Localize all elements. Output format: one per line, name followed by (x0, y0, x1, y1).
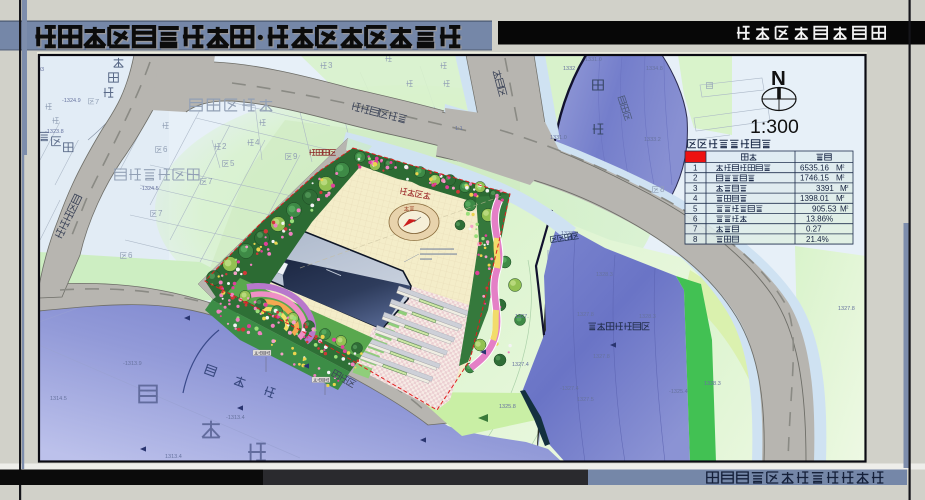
svg-text:1327.8: 1327.8 (593, 354, 610, 360)
svg-text:4: 4 (255, 138, 260, 147)
svg-text:6: 6 (693, 215, 698, 224)
svg-text:1331.0: 1331.0 (550, 135, 567, 141)
svg-text:6: 6 (128, 251, 133, 260)
svg-text:13.86%: 13.86% (806, 215, 833, 224)
svg-text:1328.3: 1328.3 (704, 381, 721, 387)
svg-text:21.4%: 21.4% (806, 235, 829, 244)
svg-text:1331.0: 1331.0 (585, 57, 602, 63)
svg-text:6535.16: 6535.16 (800, 164, 829, 173)
svg-text:1327.8: 1327.8 (838, 306, 855, 312)
svg-text:8: 8 (660, 185, 665, 194)
svg-text:-1325.4: -1325.4 (669, 389, 688, 395)
svg-text:9: 9 (293, 152, 298, 161)
svg-text:1314.5: 1314.5 (50, 396, 67, 402)
svg-text:7: 7 (208, 177, 213, 186)
svg-text:1325.8: 1325.8 (499, 404, 516, 410)
svg-text:8: 8 (693, 235, 698, 244)
svg-text:1398.01: 1398.01 (800, 194, 829, 203)
svg-text:1327.: 1327. (515, 314, 529, 320)
svg-text:5: 5 (230, 159, 235, 168)
svg-text:N: N (771, 67, 787, 90)
svg-text:6: 6 (163, 145, 168, 154)
svg-text:1:1: 1:1 (455, 126, 463, 132)
svg-text:7: 7 (95, 97, 99, 106)
svg-text:-1324.9: -1324.9 (62, 98, 81, 104)
svg-text:-1324.5: -1324.5 (140, 186, 159, 192)
svg-text:905.53: 905.53 (812, 204, 837, 213)
svg-text:1327.8: 1327.8 (577, 312, 594, 318)
svg-text:1313.4: 1313.4 (165, 454, 182, 460)
svg-text:7: 7 (693, 225, 698, 234)
svg-text:-1323.8: -1323.8 (45, 129, 64, 135)
svg-text:5: 5 (693, 204, 698, 213)
svg-text:-1313.9: -1313.9 (123, 361, 142, 367)
svg-text:-1327.4: -1327.4 (560, 386, 579, 392)
svg-text:1327.4: 1327.4 (512, 362, 529, 368)
svg-text:4: 4 (693, 194, 698, 203)
svg-text:3: 3 (693, 184, 698, 193)
svg-text:1333.2: 1333.2 (644, 137, 661, 143)
svg-text:2: 2 (222, 142, 227, 151)
svg-text:3391: 3391 (816, 184, 834, 193)
svg-text:1334.8: 1334.8 (646, 66, 663, 72)
svg-text:3: 3 (328, 61, 333, 70)
svg-text:1332: 1332 (563, 66, 575, 72)
svg-text:1328.3: 1328.3 (596, 272, 613, 278)
svg-text:0.27: 0.27 (806, 225, 822, 234)
svg-text:1: 1 (693, 164, 698, 173)
svg-text:7: 7 (158, 209, 163, 218)
svg-text:2: 2 (693, 174, 698, 183)
svg-text:1327.5: 1327.5 (577, 397, 594, 403)
svg-text:-1313.4: -1313.4 (226, 415, 245, 421)
svg-text:1:300: 1:300 (750, 116, 799, 138)
svg-text:1746.15: 1746.15 (800, 174, 829, 183)
svg-text:1328.3: 1328.3 (639, 314, 656, 320)
